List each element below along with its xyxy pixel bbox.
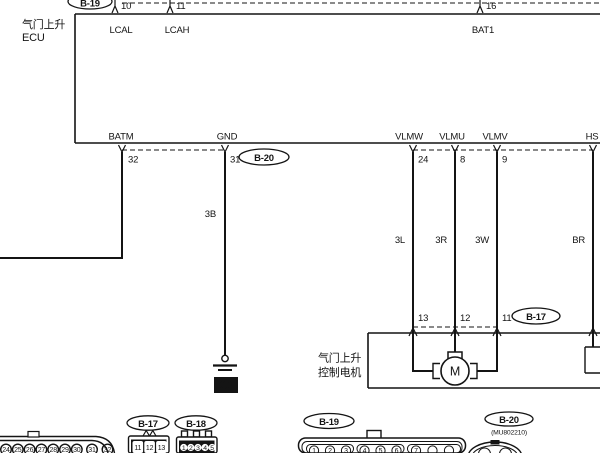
- motor-m-label: M: [450, 365, 460, 379]
- pin-24: 24: [2, 447, 10, 453]
- bottom-connector-b19: B-19 1 2 3 4 5 6 7: [299, 414, 466, 453]
- motor-hs-terminal-box: [585, 347, 600, 373]
- pin-number-13: 13: [418, 313, 428, 324]
- b19-pin-1: 1: [312, 448, 316, 453]
- wiring-diagram-page: 气门上升 ECU B-19 10 11 16 LCAL LCAH BAT1 BA…: [0, 0, 600, 453]
- pin-32: 32: [104, 447, 112, 453]
- ecu-title-line2: ECU: [22, 32, 45, 44]
- b17-pin-13: 13: [158, 445, 166, 452]
- motor-title-line1: 气门上升: [318, 351, 361, 365]
- pin-number-12: 12: [460, 313, 470, 324]
- b18-pin-1: 1: [182, 445, 186, 452]
- b19-pin-2: 2: [328, 448, 332, 453]
- top-connector-row: B-19 10 11 16 LCAL LCAH BAT1: [68, 0, 600, 36]
- pin-number-9: 9: [502, 155, 507, 166]
- wire-vlmv: [477, 152, 497, 371]
- b19-pin-7: 7: [414, 448, 418, 453]
- signal-vlmu: VLMU: [439, 132, 465, 143]
- ecu-bottom-signals: BATM GND VLMW VLMU VLMV HS: [109, 132, 599, 143]
- b18-pin-4: 4: [203, 445, 207, 452]
- ground-symbol: 23: [213, 355, 238, 393]
- b19-pin-5: 5: [379, 448, 383, 453]
- b17-pin-11: 11: [134, 445, 141, 452]
- motor-pin-row: 13 12 11 B-17: [409, 308, 597, 336]
- connector-label-b18-bottom: B-18: [186, 419, 206, 430]
- harness-wires: [0, 152, 593, 371]
- wire-label-3b: 3B: [205, 209, 216, 220]
- ecu-output-pin-forks: [119, 145, 597, 152]
- connector-label-b20-mid: B-20: [254, 153, 274, 164]
- bottom-connector-b20: B-20 (MU802210): [468, 412, 533, 453]
- motor-title-line2: 控制电机: [318, 365, 361, 379]
- wire-label-3r: 3R: [435, 235, 447, 246]
- signal-vlmv: VLMV: [482, 132, 508, 143]
- motor-brush-left: [433, 364, 440, 379]
- ecu-output-pin-numbers: 32 31 24 8 9: [128, 155, 507, 166]
- ecu-title-line1: 气门上升: [22, 17, 65, 31]
- b19-pin-6: 6: [395, 448, 399, 453]
- bottom-connector-b17: B-17 11 12 13: [127, 416, 169, 453]
- wiring-diagram: 气门上升 ECU B-19 10 11 16 LCAL LCAH BAT1 BA…: [0, 0, 600, 453]
- motor-entry-arrows: [409, 328, 597, 336]
- b18-pin-3: 3: [196, 445, 200, 452]
- pin-number-11: 11: [176, 1, 185, 12]
- wire-label-3w: 3W: [475, 235, 489, 246]
- signal-batm: BATM: [109, 132, 134, 143]
- bottom-connector-b18: B-18 1 2 3 4 5: [175, 416, 217, 453]
- pin-number-8: 8: [460, 155, 465, 166]
- wire-label-br: BR: [572, 235, 585, 246]
- connector-label-b17-mid: B-17: [526, 312, 546, 323]
- b17-pin-12: 12: [146, 445, 154, 452]
- pin-number-16: 16: [486, 1, 496, 12]
- connector-label-b19-top: B-19: [80, 0, 100, 10]
- signal-bat1: BAT1: [472, 25, 494, 36]
- motor-box: [368, 333, 600, 388]
- connector-label-b17-bottom: B-17: [138, 419, 158, 430]
- b19-pin-4: 4: [363, 448, 367, 453]
- pin-27: 27: [38, 447, 46, 453]
- wire-vlmw: [413, 152, 433, 371]
- left-partial-pins: 24 25 26 27 28 29 30 31 32: [1, 444, 113, 453]
- wire-color-labels: 3B 3L 3R 3W BR: [205, 209, 586, 246]
- pin-number-10: 10: [121, 1, 131, 12]
- motor-symbol: M: [433, 352, 477, 385]
- pin-31: 31: [88, 447, 96, 453]
- wire-batm: [0, 152, 122, 258]
- wire-label-3l: 3L: [395, 235, 405, 246]
- ecu-box: [75, 14, 600, 143]
- connector-label-b19-bottom: B-19: [319, 417, 339, 428]
- b18-pin-2: 2: [189, 445, 193, 452]
- top-pin-forks: [112, 0, 483, 13]
- signal-vlmw: VLMW: [395, 132, 423, 143]
- pin-28: 28: [50, 447, 58, 453]
- pin-number-24: 24: [418, 155, 428, 166]
- pin-29: 29: [61, 447, 69, 453]
- pin-number-11b: 11: [502, 313, 511, 324]
- signal-lcal: LCAL: [110, 25, 133, 36]
- b19-pin-3: 3: [344, 448, 348, 453]
- pin-25: 25: [14, 447, 22, 453]
- pin-30: 30: [73, 447, 81, 453]
- motor-brush-right: [470, 364, 477, 379]
- pin-number-32: 32: [128, 155, 138, 166]
- connector-part-number: (MU802210): [491, 430, 527, 437]
- pin-26: 26: [26, 447, 34, 453]
- signal-hs: HS: [586, 132, 599, 143]
- bottom-connector-left-partial: 24 25 26 27 28 29 30 31 32: [0, 432, 115, 453]
- signal-lcah: LCAH: [165, 25, 190, 36]
- connector-label-b20-bottom: B-20: [499, 415, 519, 426]
- ground-number: 23: [220, 381, 232, 393]
- b18-pin-5: 5: [210, 445, 214, 452]
- signal-gnd: GND: [217, 132, 238, 143]
